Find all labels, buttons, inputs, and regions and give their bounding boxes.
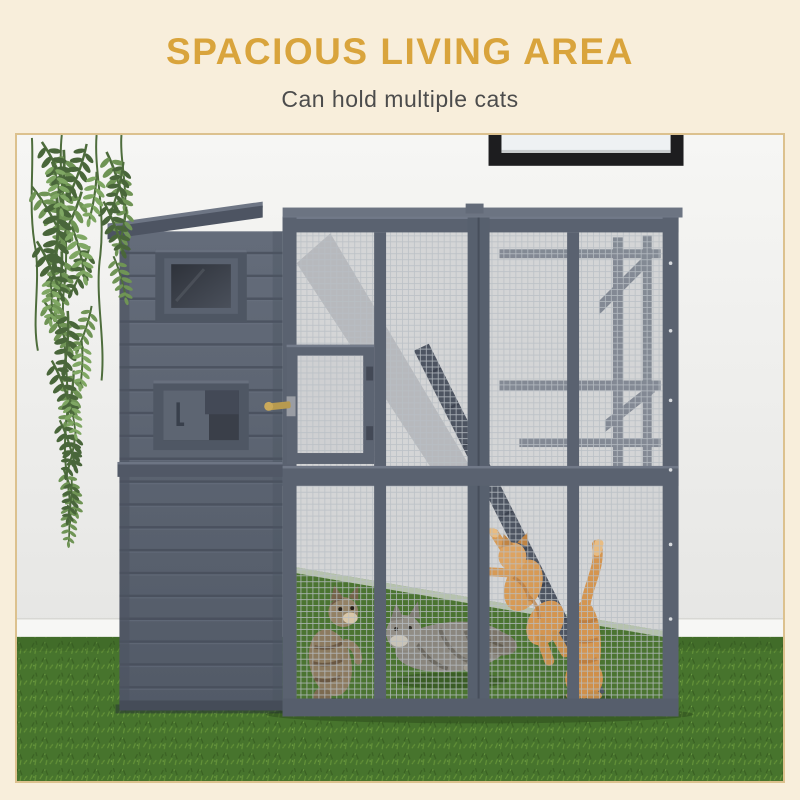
mid-rail (283, 466, 679, 486)
picture-frame (489, 135, 684, 166)
door-hinge (366, 367, 373, 381)
marketing-banner: { "header": { "title": "SPACIOUS LIVING … (0, 0, 800, 800)
catio-structure (108, 202, 694, 724)
cabin-access-door (153, 380, 249, 450)
cat-house-cabin (108, 202, 285, 711)
cabin-window (155, 249, 247, 323)
page-subtitle: Can hold multiple cats (0, 73, 800, 113)
product-photo (15, 133, 785, 783)
bottom-rail (283, 699, 679, 717)
door-hinge (366, 426, 373, 440)
catio-scene (17, 135, 783, 781)
page-title: SPACIOUS LIVING AREA (0, 0, 800, 73)
caption-header: SPACIOUS LIVING AREA Can hold multiple c… (0, 0, 800, 113)
